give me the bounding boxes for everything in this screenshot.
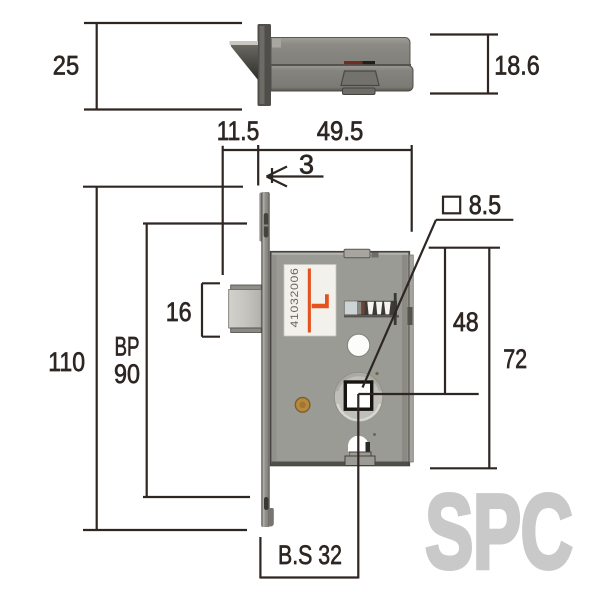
svg-text:B.S 32: B.S 32 (278, 540, 342, 570)
svg-text:25: 25 (53, 50, 79, 80)
svg-text:16: 16 (166, 297, 192, 327)
svg-text:SPC: SPC (425, 473, 572, 591)
svg-text:72: 72 (503, 344, 527, 374)
svg-text:48: 48 (453, 307, 479, 337)
svg-text:49.5: 49.5 (317, 116, 364, 146)
svg-text:8.5: 8.5 (469, 190, 502, 220)
svg-text:BP: BP (115, 332, 140, 362)
svg-text:18.6: 18.6 (494, 51, 539, 81)
svg-text:41032006: 41032006 (289, 268, 301, 328)
svg-text:90: 90 (114, 359, 140, 389)
svg-text:11.5: 11.5 (217, 116, 260, 146)
svg-text:110: 110 (48, 347, 85, 377)
svg-text:3: 3 (299, 150, 314, 180)
